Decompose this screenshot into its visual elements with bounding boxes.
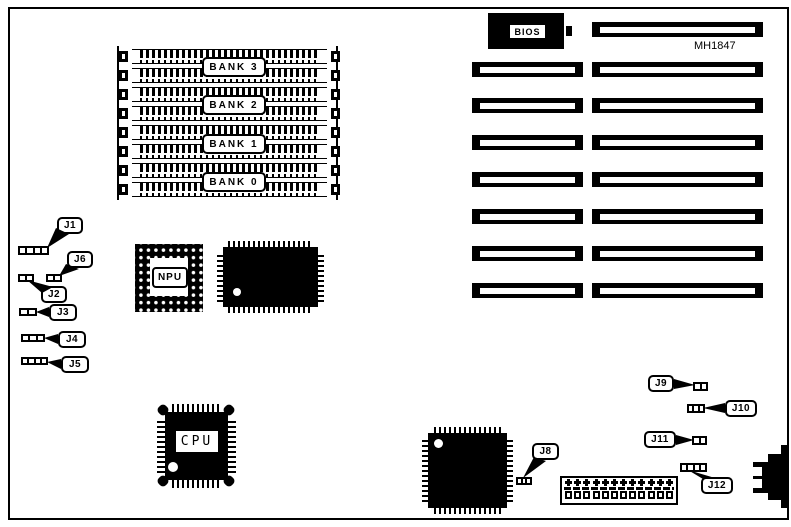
jumper-j1 xyxy=(18,246,49,255)
cpu-leads-left xyxy=(157,419,165,473)
jumper-j3 xyxy=(19,308,37,316)
isa-slot xyxy=(592,135,763,150)
jumper-j11 xyxy=(692,436,707,445)
motherboard-diagram: BANK 3 BANK 2 BANK 1 BANK 0 BIOS MH1847 … xyxy=(0,0,791,527)
power-pins-row xyxy=(562,478,676,486)
jumper-j12 xyxy=(680,463,707,472)
din-body xyxy=(781,445,788,508)
jumper-j5 xyxy=(21,357,48,365)
din-body xyxy=(768,454,781,500)
din-notch xyxy=(753,467,762,476)
isa-slot xyxy=(592,209,763,224)
jumper-j2 xyxy=(18,274,34,282)
isa-slot xyxy=(592,22,763,37)
pin1-dot xyxy=(434,439,443,448)
bank-1-label: BANK 1 xyxy=(202,134,266,154)
isa-slot xyxy=(472,98,583,113)
bios-label: BIOS xyxy=(510,25,545,38)
power-sockets-row xyxy=(562,491,676,499)
isa-slot xyxy=(472,246,583,261)
isa-slot xyxy=(472,209,583,224)
callout-j12: J12 xyxy=(701,477,733,494)
isa-slot xyxy=(472,135,583,150)
model-number: MH1847 xyxy=(694,40,736,52)
callout-j5: J5 xyxy=(61,356,89,373)
callout-j11: J11 xyxy=(644,431,676,448)
chip-leads-right xyxy=(318,252,324,302)
din-notch xyxy=(753,479,762,488)
cpu-leads-bottom xyxy=(172,480,222,488)
jumper-j8 xyxy=(516,477,532,485)
callout-j4: J4 xyxy=(58,331,86,348)
isa-slot xyxy=(592,98,763,113)
pin1-dot xyxy=(168,462,178,472)
bank-3-label: BANK 3 xyxy=(202,57,266,77)
pin1-dot xyxy=(233,288,241,296)
callout-j10: J10 xyxy=(725,400,757,417)
cpu-leads-top xyxy=(172,404,222,412)
callout-j2: J2 xyxy=(41,286,67,303)
bank-0-label: BANK 0 xyxy=(202,172,266,192)
power-connector-bar xyxy=(564,487,674,490)
callout-j3: J3 xyxy=(49,304,77,321)
bank-2-label: BANK 2 xyxy=(202,95,266,115)
cpu-label: CPU xyxy=(176,431,218,452)
jumper-j9 xyxy=(693,382,708,391)
isa-slot xyxy=(472,172,583,187)
bios-chip-notch xyxy=(566,26,572,36)
cpu-leads-right xyxy=(228,419,236,473)
chip-body xyxy=(223,247,318,307)
chip-leads-bottom xyxy=(434,508,501,514)
isa-slot xyxy=(472,283,583,298)
callout-j8: J8 xyxy=(532,443,559,460)
jumper-j6 xyxy=(46,274,62,282)
power-connector xyxy=(560,476,678,505)
callout-j9: J9 xyxy=(648,375,674,392)
chip-leads-bottom xyxy=(228,307,313,313)
callout-j1: J1 xyxy=(57,217,83,234)
npu-label: NPU xyxy=(152,267,188,288)
callout-j6: J6 xyxy=(67,251,93,268)
isa-slot xyxy=(472,62,583,77)
isa-slot xyxy=(592,172,763,187)
isa-slot xyxy=(592,283,763,298)
isa-slot xyxy=(592,62,763,77)
jumper-j10 xyxy=(687,404,705,413)
chip-leads-right xyxy=(507,439,513,502)
isa-slot xyxy=(592,246,763,261)
jumper-j4 xyxy=(21,334,45,342)
